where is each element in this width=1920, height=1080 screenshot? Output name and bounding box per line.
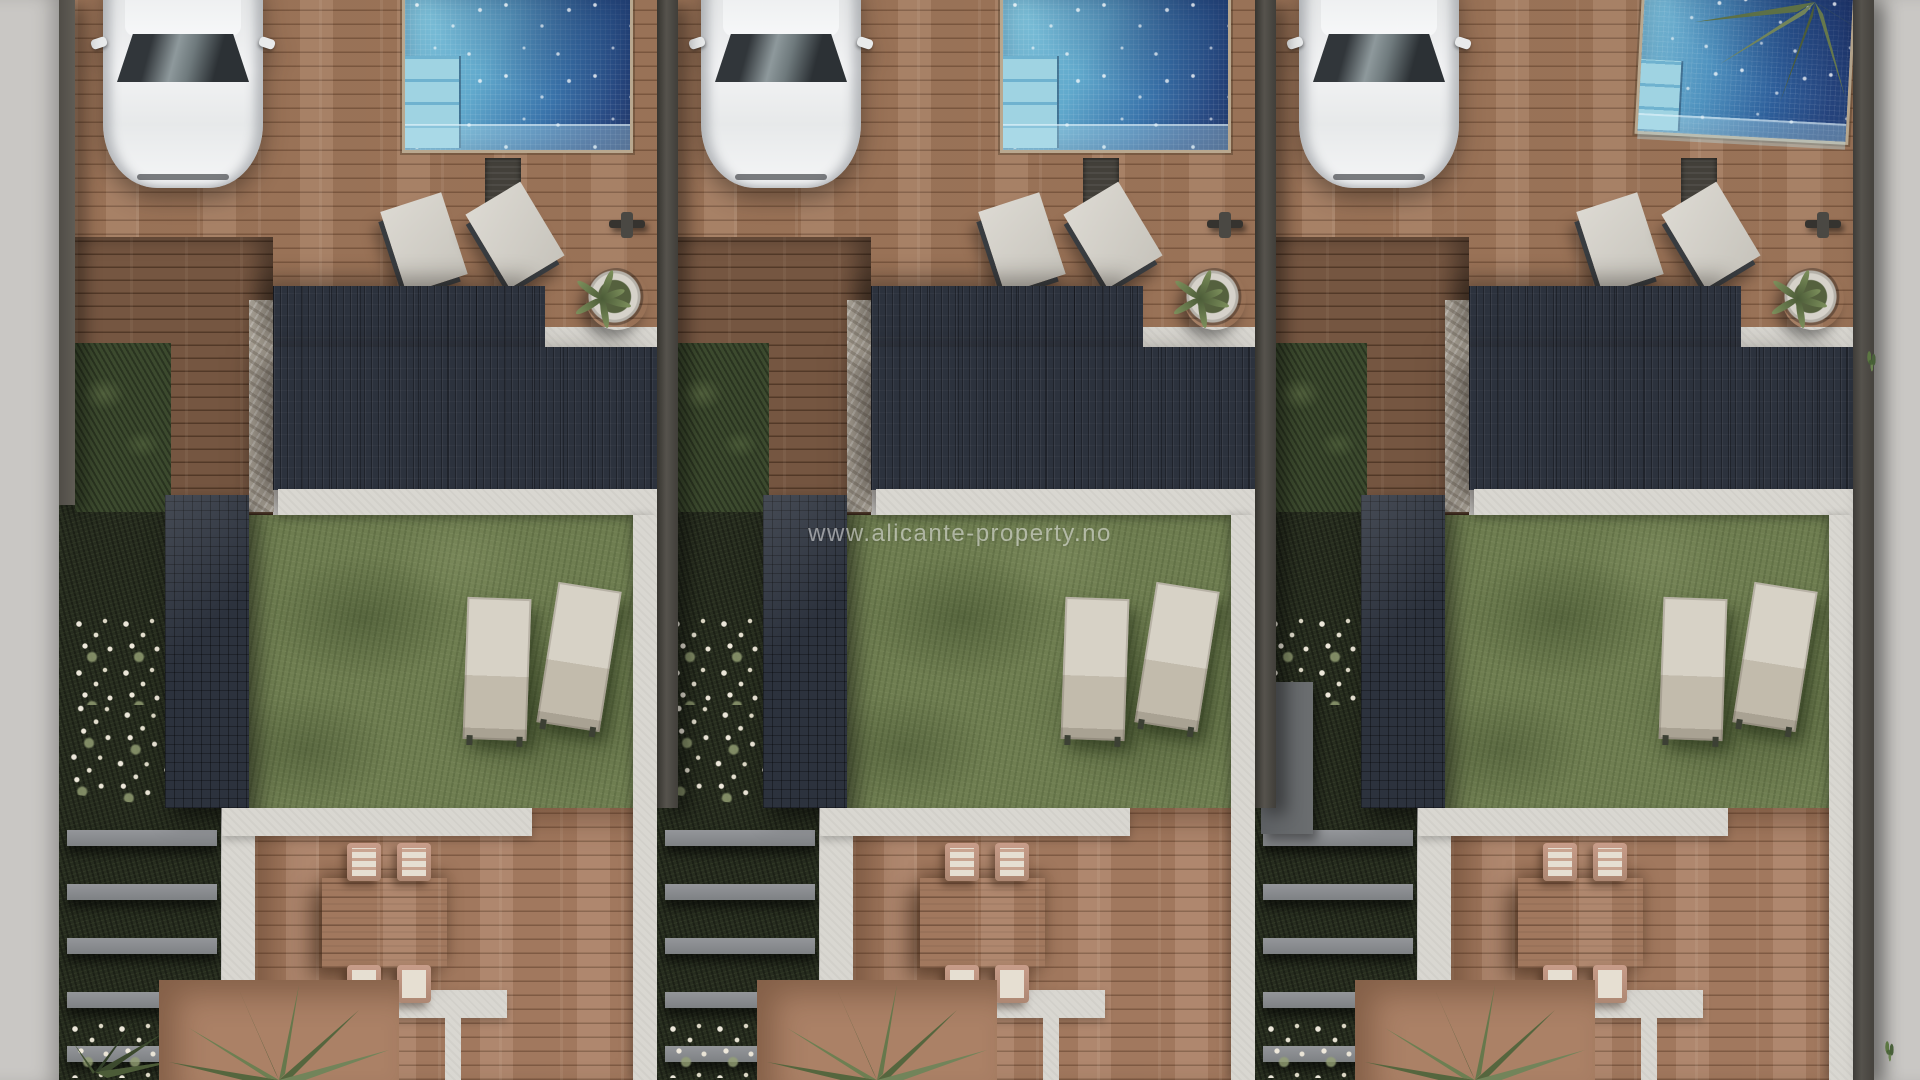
main-roof — [871, 347, 1255, 490]
shower-head — [621, 212, 633, 238]
aerial-villas-render: www.alicante-property.no — [0, 0, 1920, 1080]
dining-chair — [397, 965, 431, 1003]
small-plant-sprig — [1880, 1038, 1898, 1064]
watermark: www.alicante-property.no — [0, 520, 1920, 548]
walkway-horizontal — [1474, 489, 1853, 515]
walkway-vertical — [1829, 515, 1853, 1080]
patio-border-top — [222, 808, 532, 836]
divider-wall — [657, 0, 678, 808]
outdoor-shower — [1207, 210, 1243, 240]
dining-chair — [1593, 965, 1627, 1003]
walkway-vertical — [1231, 515, 1255, 1080]
car-windshield — [1313, 34, 1445, 82]
stone-wall — [847, 300, 872, 512]
car-roof — [723, 0, 839, 36]
swimming-pool — [405, 0, 630, 150]
potted-plant — [586, 268, 648, 330]
garden-bush — [1271, 343, 1367, 512]
white-car — [701, 0, 861, 188]
garden-step — [67, 830, 217, 846]
car-grille — [735, 174, 827, 180]
garden-step — [67, 938, 217, 954]
dining-table — [920, 878, 1045, 968]
palm-tree-over-pool — [1675, 0, 1853, 112]
car-grille — [1333, 174, 1425, 180]
dining-chair — [995, 843, 1029, 881]
potted-plant — [1782, 268, 1844, 330]
sun-lounger — [463, 597, 532, 741]
dining-chair — [1543, 843, 1577, 881]
palm-tree — [1355, 980, 1595, 1080]
divider-wall — [1255, 0, 1276, 808]
divider-wall — [59, 0, 75, 505]
potted-plant — [1184, 268, 1246, 330]
dining-chair — [347, 843, 381, 881]
dining-chair — [995, 965, 1029, 1003]
car-grille — [137, 174, 229, 180]
dining-chair — [397, 843, 431, 881]
stone-wall — [249, 300, 274, 512]
patio-border-top — [820, 808, 1130, 836]
white-car — [1299, 0, 1459, 188]
dining-table — [1518, 878, 1643, 968]
upper-roof — [871, 286, 1143, 349]
garden-step — [665, 884, 815, 900]
palm-tree — [757, 980, 997, 1080]
flower-bed — [61, 699, 173, 807]
garden-step — [67, 884, 217, 900]
garden-bush — [673, 343, 769, 512]
white-car — [103, 0, 263, 188]
car-windshield — [715, 34, 847, 82]
car-windshield — [117, 34, 249, 82]
outdoor-shower — [1805, 210, 1841, 240]
sun-lounger — [1659, 597, 1728, 741]
upper-roof — [273, 286, 545, 349]
swimming-pool — [1003, 0, 1228, 150]
flower-bed — [1263, 1020, 1353, 1078]
patio-border-top — [1418, 808, 1728, 836]
walkway-horizontal — [876, 489, 1255, 515]
stone-wall — [1445, 300, 1470, 512]
shower-head — [1817, 212, 1829, 238]
garden-step — [1263, 884, 1413, 900]
garden-step — [665, 830, 815, 846]
palm-tree — [159, 980, 399, 1080]
sun-lounger — [1061, 597, 1130, 741]
walkway-horizontal — [278, 489, 657, 515]
shower-head — [1219, 212, 1231, 238]
dining-table — [322, 878, 447, 968]
entry-post — [445, 1018, 461, 1080]
entry-post — [1043, 1018, 1059, 1080]
main-roof — [273, 347, 657, 490]
dining-chair — [1593, 843, 1627, 881]
car-roof — [125, 0, 241, 36]
garden-bush — [75, 343, 171, 512]
walkway-vertical — [633, 515, 657, 1080]
outdoor-shower — [609, 210, 645, 240]
dining-chair — [945, 843, 979, 881]
flower-bed — [665, 1020, 755, 1078]
pool-shallow-shelf — [405, 124, 630, 150]
upper-roof — [1469, 286, 1741, 349]
car-roof — [1321, 0, 1437, 36]
pool-shallow-shelf — [1003, 124, 1228, 150]
entry-post — [1641, 1018, 1657, 1080]
main-roof — [1469, 347, 1853, 490]
garden-step — [1263, 938, 1413, 954]
garden-step — [665, 938, 815, 954]
small-plant-sprig — [1862, 348, 1880, 374]
